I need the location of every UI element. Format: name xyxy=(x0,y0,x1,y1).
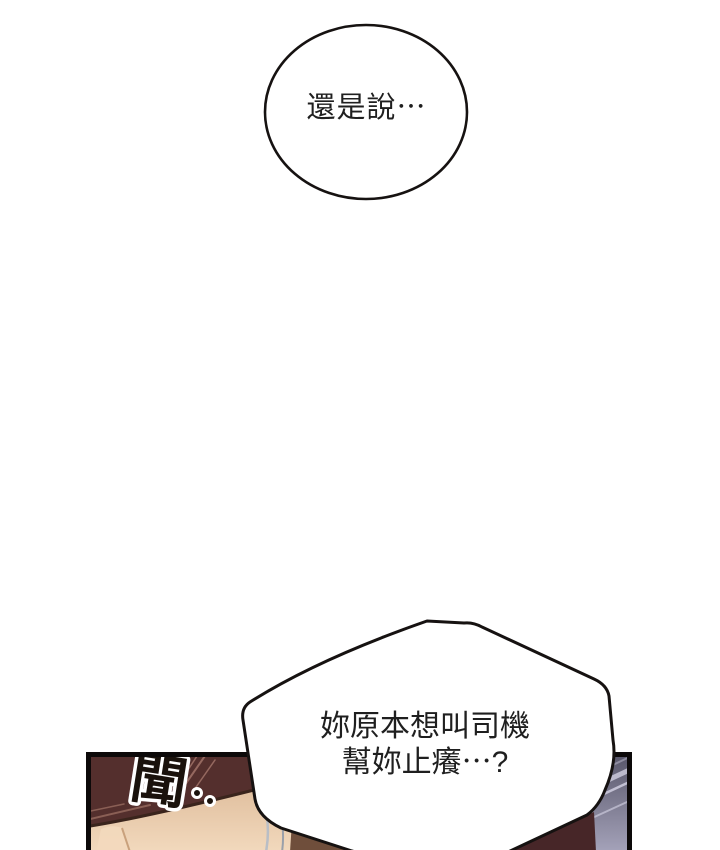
comic-page: 聞 還是說⋯ 妳原本想叫司機 幫妳止癢⋯? xyxy=(0,0,720,850)
speech-text-bottom-line2: 幫妳止癢⋯? xyxy=(296,745,554,781)
sfx-dot xyxy=(206,797,215,806)
speech-text-top-line: 還是說⋯ xyxy=(306,92,426,124)
speech-text-bottom-line1: 妳原本想叫司機 xyxy=(296,709,554,745)
speech-text-top: 還是說⋯ xyxy=(265,90,468,126)
sfx-dot xyxy=(193,789,202,798)
speech-text-bottom: 妳原本想叫司機 幫妳止癢⋯? xyxy=(296,709,554,781)
